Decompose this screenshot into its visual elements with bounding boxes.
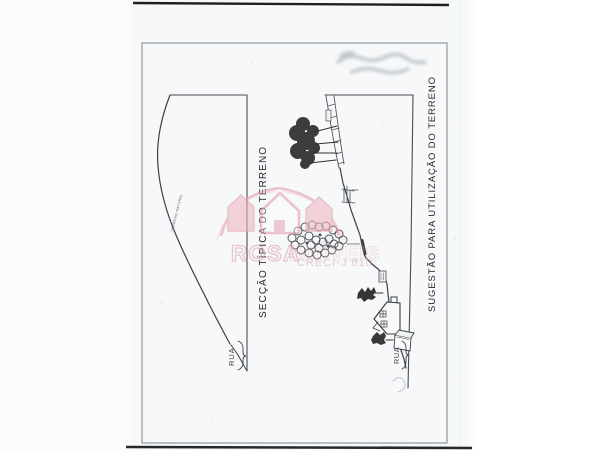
right-diagram-title: SUGESTÃO PARA UTILIZAÇÃO DO TERRENO: [427, 76, 438, 312]
street-label-right: RUA: [392, 347, 401, 364]
desk-background: [478, 0, 600, 450]
bank-sign-marker: [326, 110, 331, 121]
scanned-document-page: TERRENO NATURAL RUA SECÇÃO TÍPICA DO TER…: [0, 0, 600, 450]
scan-edge-bottom: [126, 447, 472, 448]
watermark-house-door: [274, 220, 285, 233]
paper-left-margin: [0, 0, 131, 450]
scan-drawing-surface: TERRENO NATURAL RUA SECÇÃO TÍPICA DO TER…: [0, 0, 600, 450]
paper-right-edge-fade: [458, 0, 480, 450]
terrace-sign-marker: [379, 271, 386, 282]
watermark-registration: CRECI-J 810: [297, 257, 373, 269]
